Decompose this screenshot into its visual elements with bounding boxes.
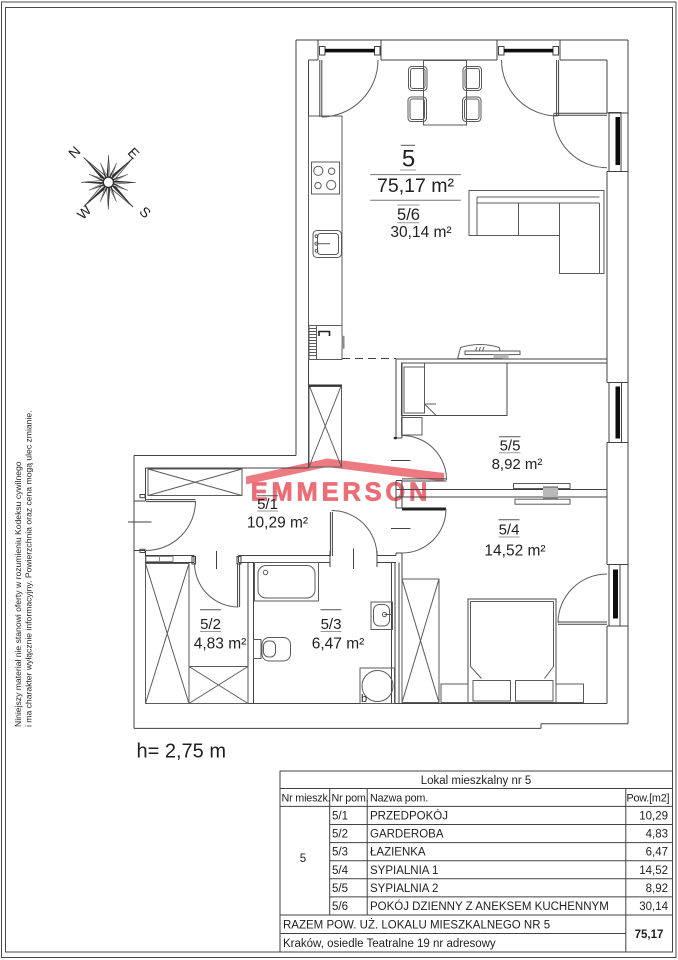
svg-text:Kraków, osiedle Teatralne 19 n: Kraków, osiedle Teatralne 19 nr adresowy (283, 938, 496, 950)
svg-text:Pow.[m2]: Pow.[m2] (627, 793, 670, 805)
svg-text:6,47 m²: 6,47 m² (312, 636, 365, 653)
svg-text:5/2: 5/2 (332, 829, 348, 841)
svg-text:POKÓJ DZIENNY Z ANEKSEM KUCHEN: POKÓJ DZIENNY Z ANEKSEM KUCHENNYM (370, 900, 609, 913)
svg-text:Nr pom.: Nr pom. (332, 793, 369, 805)
svg-text:5/3: 5/3 (332, 847, 348, 859)
svg-text:5/1: 5/1 (257, 496, 278, 513)
svg-text:SYPIALNIA 1: SYPIALNIA 1 (370, 865, 438, 877)
svg-text:Nr mieszk.: Nr mieszk. (282, 793, 331, 805)
svg-text:b: b (361, 693, 367, 705)
svg-text:75,17 m²: 75,17 m² (377, 175, 454, 197)
svg-text:RAZEM POW. UŻ. LOKALU MIESZKAL: RAZEM POW. UŻ. LOKALU MIESZKALNEGO NR 5 (283, 919, 550, 932)
svg-text:14,52 m²: 14,52 m² (484, 543, 545, 560)
svg-text:5/4: 5/4 (332, 865, 349, 877)
svg-text:30,14 m²: 30,14 m² (390, 224, 451, 241)
svg-text:5/1: 5/1 (332, 811, 348, 823)
svg-text:5: 5 (300, 853, 306, 865)
svg-text:5: 5 (402, 146, 415, 173)
svg-text:SYPIALNIA 2: SYPIALNIA 2 (370, 883, 438, 895)
svg-text:30,14: 30,14 (639, 901, 668, 913)
svg-text:ŁAZIENKA: ŁAZIENKA (370, 847, 426, 859)
svg-text:Niniejszy materiał nie stanowi: Niniejszy materiał nie stanowi oferty w … (13, 461, 23, 727)
svg-text:5/5: 5/5 (500, 438, 521, 455)
svg-text:Nazwa pom.: Nazwa pom. (370, 793, 428, 805)
svg-text:10,29 m²: 10,29 m² (247, 515, 308, 532)
svg-text:4,83 m²: 4,83 m² (194, 636, 247, 653)
svg-text:6,47: 6,47 (646, 847, 668, 859)
svg-text:8,92: 8,92 (646, 883, 668, 895)
svg-text:5/3: 5/3 (321, 616, 342, 633)
svg-text:5/5: 5/5 (332, 883, 348, 895)
svg-text:5/6: 5/6 (332, 901, 348, 913)
svg-text:5/2: 5/2 (200, 616, 221, 633)
svg-text:14,52: 14,52 (639, 865, 668, 877)
svg-text:5/6: 5/6 (397, 206, 420, 224)
svg-text:Lokal mieszkalny nr 5: Lokal mieszkalny nr 5 (421, 775, 532, 787)
svg-text:5/4: 5/4 (499, 522, 520, 539)
svg-text:4,83: 4,83 (646, 829, 668, 841)
svg-text:75,17: 75,17 (635, 929, 664, 941)
svg-text:i ma charakter wyłącznie infor: i ma charakter wyłącznie informacyjny. P… (24, 410, 34, 727)
svg-text:GARDEROBA: GARDEROBA (370, 829, 444, 841)
svg-text:PRZEDPOKÓJ: PRZEDPOKÓJ (370, 810, 448, 823)
svg-text:h= 2,75 m: h= 2,75 m (137, 741, 227, 763)
svg-text:8,92 m²: 8,92 m² (492, 456, 543, 473)
svg-text:10,29: 10,29 (639, 811, 668, 823)
